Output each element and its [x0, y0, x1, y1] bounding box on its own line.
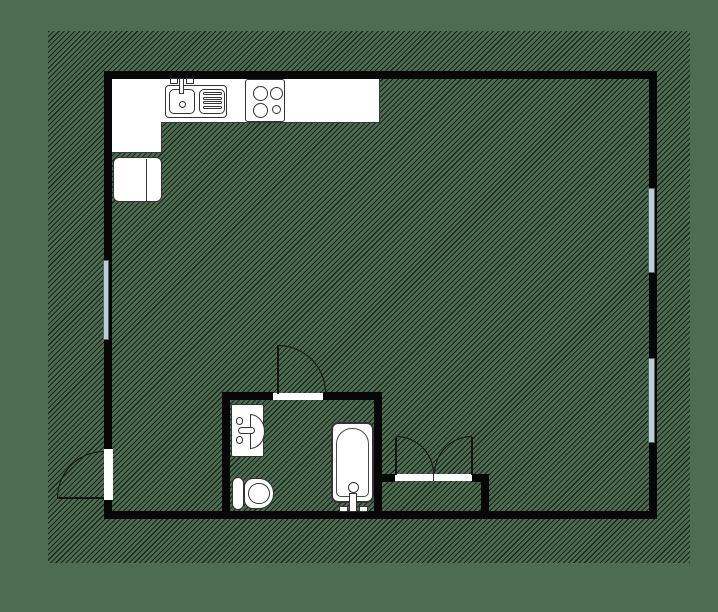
bathroom-wall-left: [222, 392, 230, 519]
counter-leg-edge-right: [161, 122, 162, 153]
counter-edge-bottom: [161, 122, 380, 123]
entry-door-leaf: [57, 497, 104, 499]
floor-plan-canvas: [0, 0, 718, 612]
faucet-handle-right: [186, 78, 194, 84]
washbasin-spout: [238, 427, 255, 434]
drainboard-rib: [203, 106, 222, 109]
kitchen-counter-leg: [112, 79, 162, 153]
entry-door-opening: [104, 449, 113, 500]
closet-door-left-leaf: [395, 437, 397, 475]
stove-burner-large: [253, 86, 268, 101]
toilet-tank: [232, 477, 244, 510]
stove-burner-large: [270, 87, 283, 100]
faucet-spout: [179, 78, 184, 94]
sink-drain: [179, 101, 186, 108]
refrigerator-door-line: [146, 159, 147, 201]
tub-faucet-stem: [349, 493, 357, 512]
counter-leg-edge-bottom: [112, 152, 162, 153]
toilet-bowl-inner: [248, 483, 270, 505]
closet-door-right-leaf: [471, 437, 473, 475]
bathroom-door-opening: [273, 393, 323, 400]
outer-wall-right: [649, 71, 657, 519]
bathroom-wall-right: [374, 392, 382, 519]
washbasin-knob-bottom: [236, 436, 244, 444]
drainboard-rib: [203, 92, 222, 95]
closet-wall-top-left-seg: [382, 474, 395, 482]
counter-edge-right: [379, 79, 380, 123]
washbasin-knob-top: [236, 417, 244, 425]
stove-burner-large: [253, 103, 268, 118]
drainboard-rib: [203, 101, 222, 104]
drainboard-rib: [203, 97, 222, 100]
tub-faucet-foot-right: [359, 506, 368, 512]
closet-wall-right: [481, 474, 489, 519]
tub-faucet-foot-left: [339, 506, 348, 512]
right-wall-window-upper: [648, 188, 655, 273]
refrigerator: [113, 157, 162, 202]
bathtub-drain: [348, 482, 359, 493]
closet-door-middle-gap: [433, 474, 434, 481]
stove-burner-small: [272, 105, 281, 114]
bathroom-door-leaf: [277, 345, 279, 394]
left-wall-window: [103, 260, 110, 340]
right-wall-window-lower: [648, 358, 655, 443]
faucet-handle-left: [170, 78, 178, 84]
bathroom-wall-top-left-seg: [230, 392, 273, 400]
